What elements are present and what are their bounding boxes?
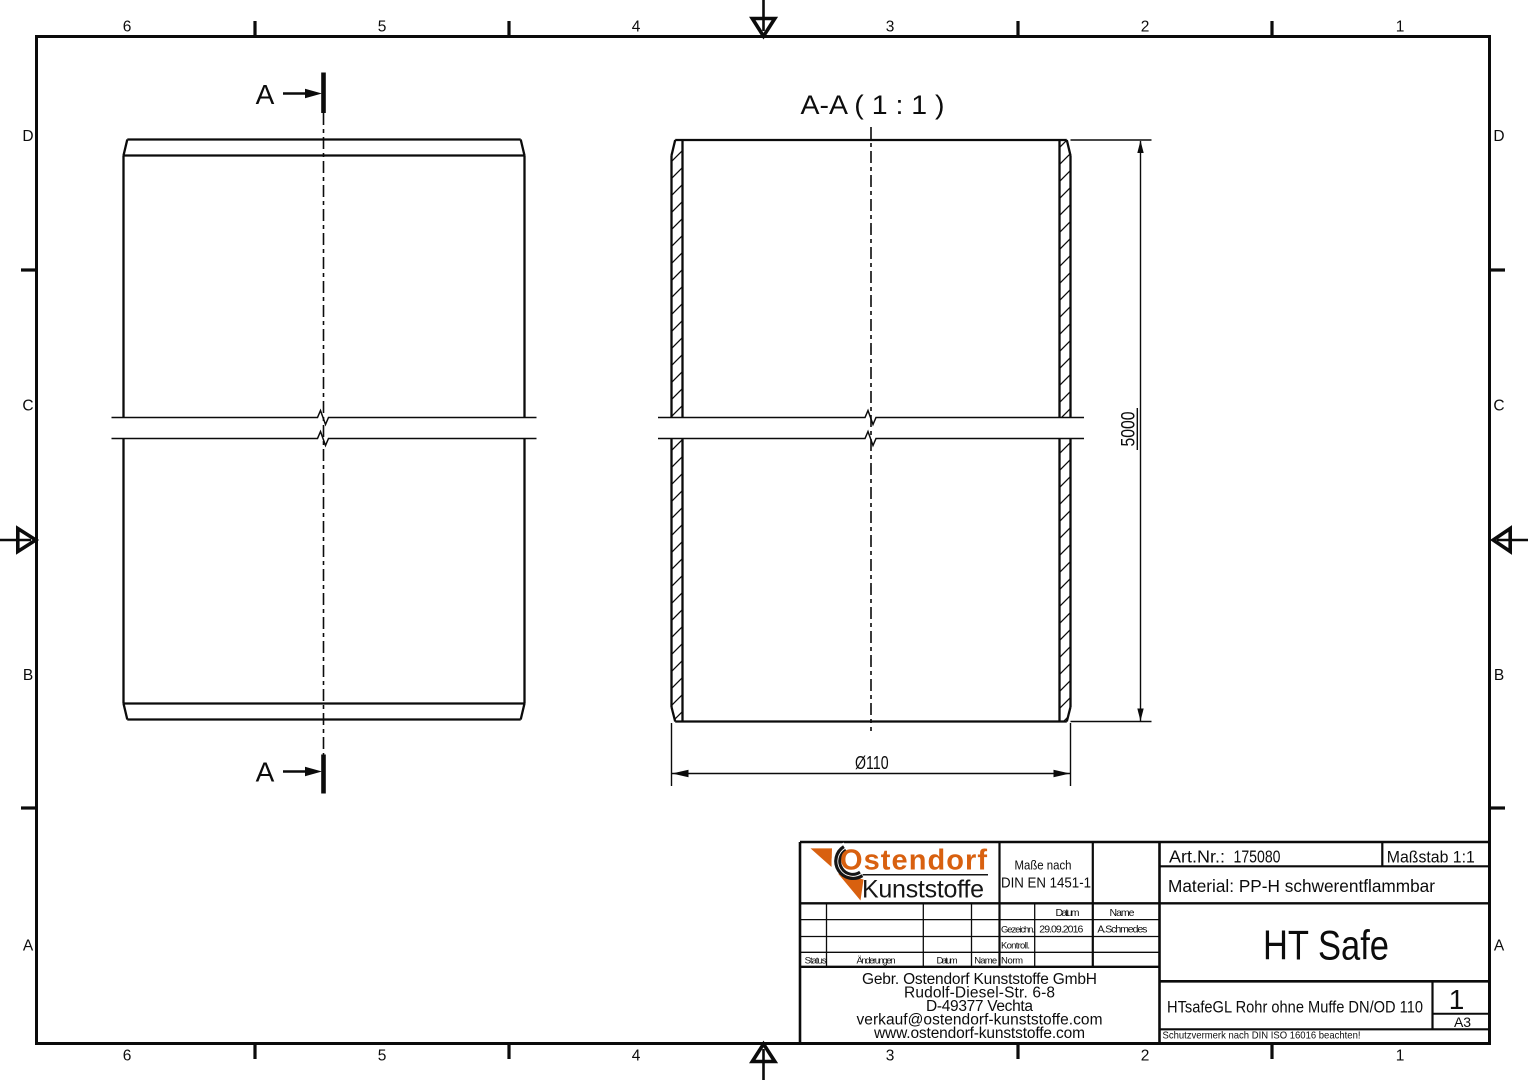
svg-text:DIN EN 1451-1: DIN EN 1451-1 (1001, 876, 1091, 892)
svg-text:Gezeichn.: Gezeichn. (1001, 925, 1035, 936)
svg-text:A: A (256, 79, 275, 110)
svg-text:3: 3 (886, 19, 895, 36)
svg-text:Art.Nr.:: Art.Nr.: (1169, 847, 1225, 867)
svg-text:C: C (1493, 398, 1504, 415)
svg-text:Name: Name (1110, 907, 1135, 919)
svg-text:A-A ( 1 : 1 ): A-A ( 1 : 1 ) (801, 90, 945, 120)
svg-text:HT Safe: HT Safe (1263, 922, 1389, 969)
svg-text:29.09.2016: 29.09.2016 (1039, 924, 1083, 936)
svg-text:3: 3 (886, 1048, 895, 1065)
svg-text:A: A (23, 938, 34, 955)
svg-text:D: D (1493, 128, 1504, 145)
svg-text:Norm: Norm (1001, 955, 1023, 966)
svg-text:5: 5 (378, 19, 387, 36)
svg-text:2: 2 (1141, 1048, 1150, 1065)
svg-text:Datum: Datum (1056, 907, 1080, 919)
svg-text:Kontroll.: Kontroll. (1001, 941, 1030, 952)
svg-text:175080: 175080 (1234, 847, 1281, 867)
svg-text:Ostendorf: Ostendorf (840, 845, 987, 877)
svg-text:6: 6 (123, 19, 132, 36)
svg-text:Kunststoffe: Kunststoffe (862, 876, 984, 904)
svg-text:A: A (1494, 938, 1505, 955)
svg-text:5000: 5000 (1117, 411, 1139, 446)
svg-text:4: 4 (632, 1048, 641, 1065)
svg-text:1: 1 (1396, 19, 1405, 36)
svg-text:B: B (23, 667, 33, 684)
svg-text:Material: PP-H schwerentflammb: Material: PP-H schwerentflammbar (1168, 876, 1435, 896)
svg-text:Name: Name (974, 955, 997, 966)
svg-text:Status: Status (805, 955, 827, 966)
svg-text:5: 5 (378, 1048, 387, 1065)
svg-text:Änderungen: Änderungen (857, 955, 896, 966)
svg-text:1: 1 (1449, 984, 1465, 1015)
svg-text:B: B (1494, 667, 1504, 684)
svg-text:Maße nach: Maße nach (1015, 859, 1072, 873)
svg-text:6: 6 (123, 1048, 132, 1065)
svg-text:Maßstab 1:1: Maßstab 1:1 (1387, 849, 1475, 867)
svg-text:1: 1 (1396, 1048, 1405, 1065)
svg-text:A: A (256, 757, 275, 788)
svg-text:D: D (22, 128, 33, 145)
svg-text:Datum: Datum (937, 955, 958, 966)
svg-text:2: 2 (1141, 19, 1150, 36)
svg-text:HTsafeGL Rohr ohne Muffe DN/OD: HTsafeGL Rohr ohne Muffe DN/OD 110 (1167, 998, 1423, 1016)
svg-text:4: 4 (632, 19, 641, 36)
svg-text:Schutzvermerk nach DIN ISO 160: Schutzvermerk nach DIN ISO 16016 beachte… (1163, 1030, 1361, 1042)
svg-text:C: C (22, 398, 33, 415)
svg-text:A3: A3 (1454, 1014, 1471, 1030)
svg-text:A.Schmedes: A.Schmedes (1097, 924, 1147, 936)
svg-text:Ø110: Ø110 (855, 753, 889, 773)
svg-text:www.ostendorf-kunststoffe.com: www.ostendorf-kunststoffe.com (873, 1025, 1085, 1042)
